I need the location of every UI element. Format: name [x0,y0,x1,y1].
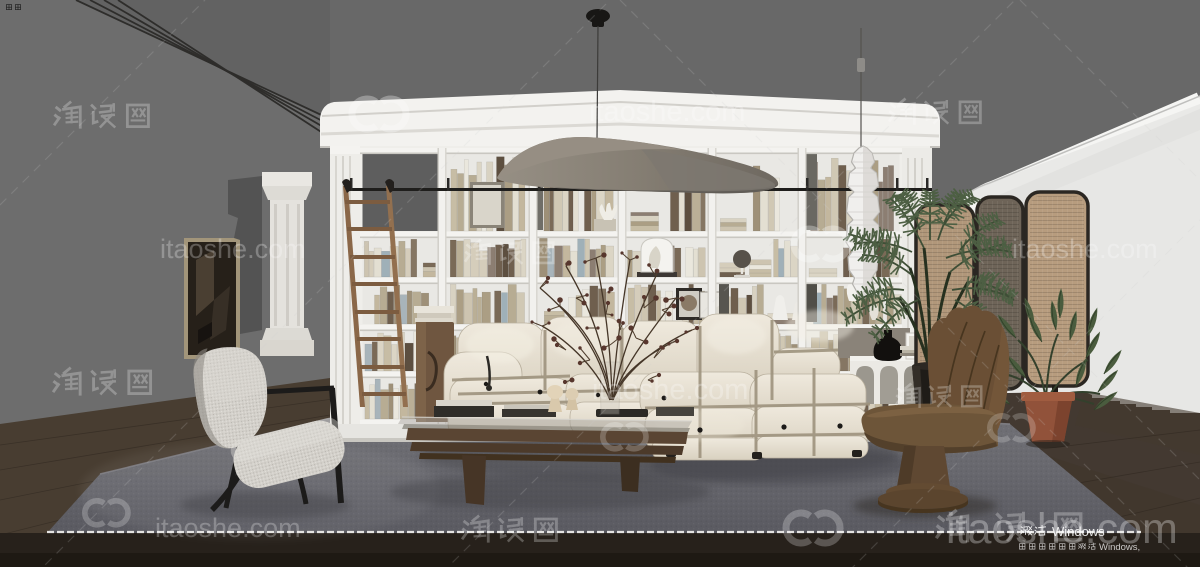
svg-text:Windows: Windows [1052,524,1105,539]
svg-text:itaoshe.com: itaoshe.com [155,513,301,543]
svg-text:itaoshe.com: itaoshe.com [160,234,306,264]
svg-text:itaoshe.com: itaoshe.com [1012,234,1158,264]
svg-text:itaoshe.com: itaoshe.com [589,96,745,128]
svg-text:itaoshe.com: itaoshe.com [592,374,748,406]
svg-text:Windows,: Windows, [1099,542,1140,553]
